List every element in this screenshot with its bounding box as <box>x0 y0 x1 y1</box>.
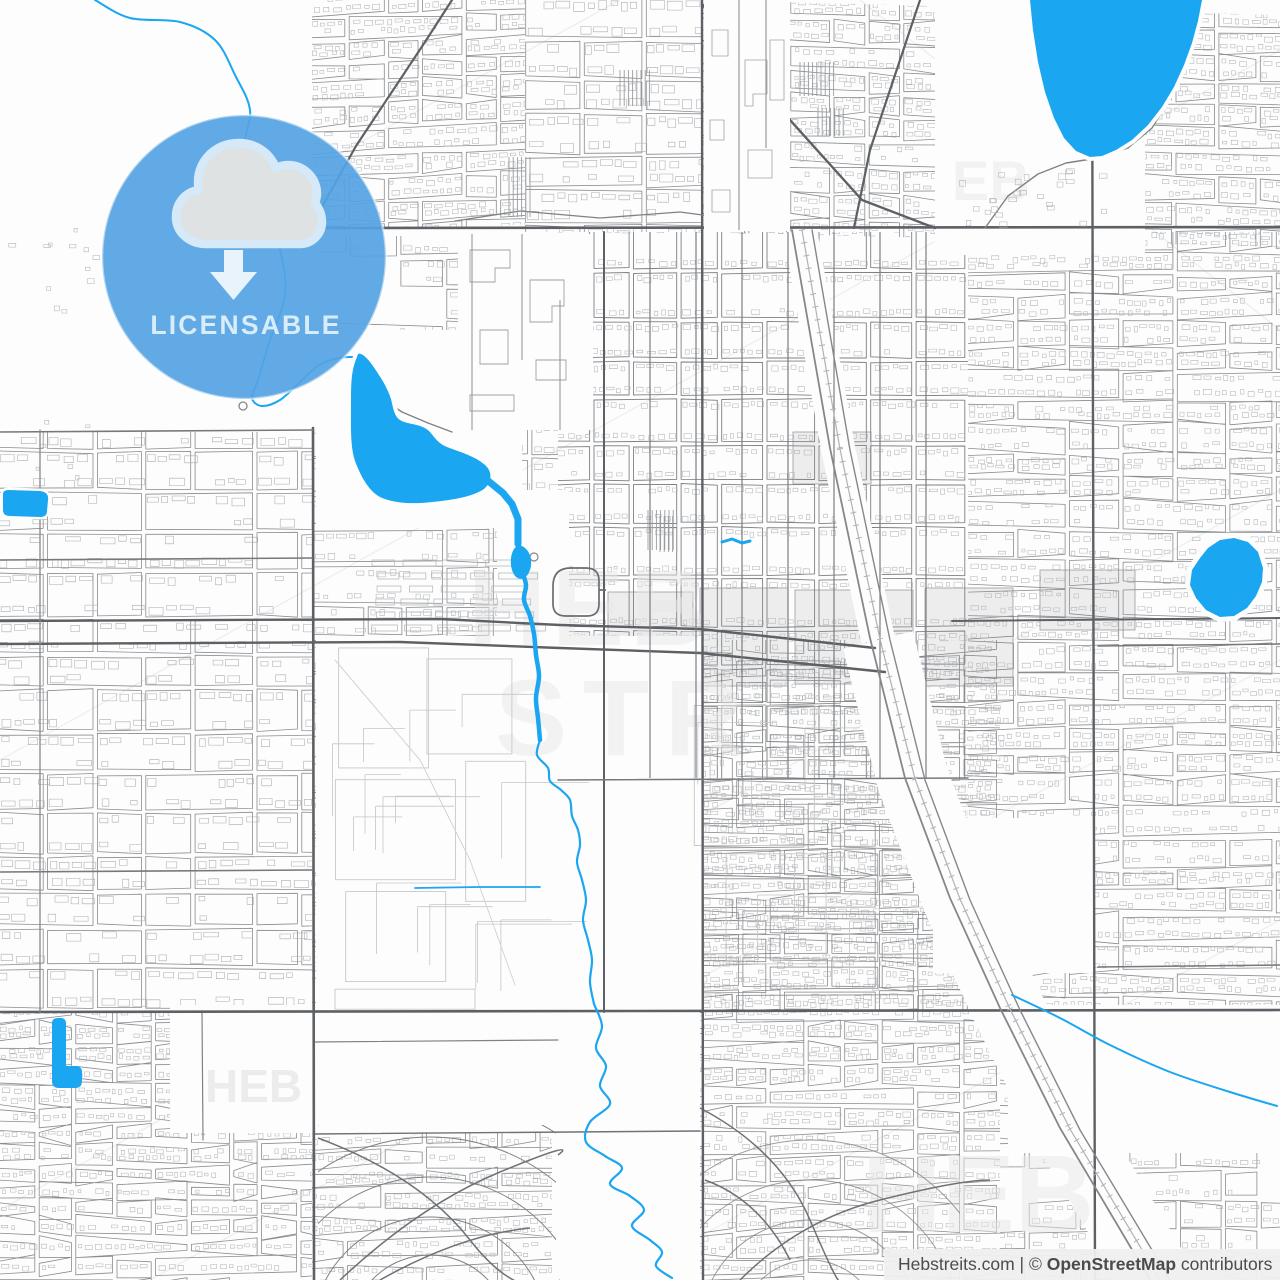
svg-text:STR: STR <box>495 657 759 778</box>
svg-text:LICENSABLE: LICENSABLE <box>150 310 341 340</box>
svg-text:HEB: HEB <box>862 1133 1094 1256</box>
svg-text:Hebstreits.com | © OpenStreetM: Hebstreits.com | © OpenStreetMap contrib… <box>898 1254 1273 1274</box>
svg-text:HEB: HEB <box>205 1060 302 1112</box>
